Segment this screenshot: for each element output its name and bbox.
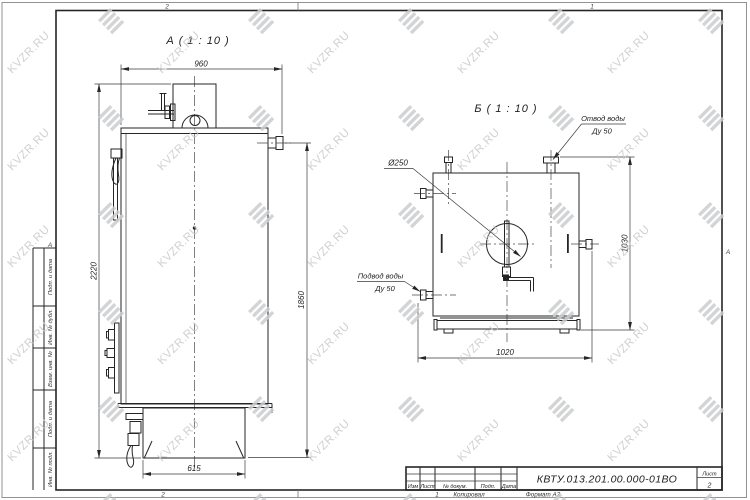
watermark-layer: KVZR.RU [0, 0, 750, 500]
drawing-sheet: 2 1 2 А А 1 Копировал Формат А3 Подп. и … [0, 0, 750, 500]
